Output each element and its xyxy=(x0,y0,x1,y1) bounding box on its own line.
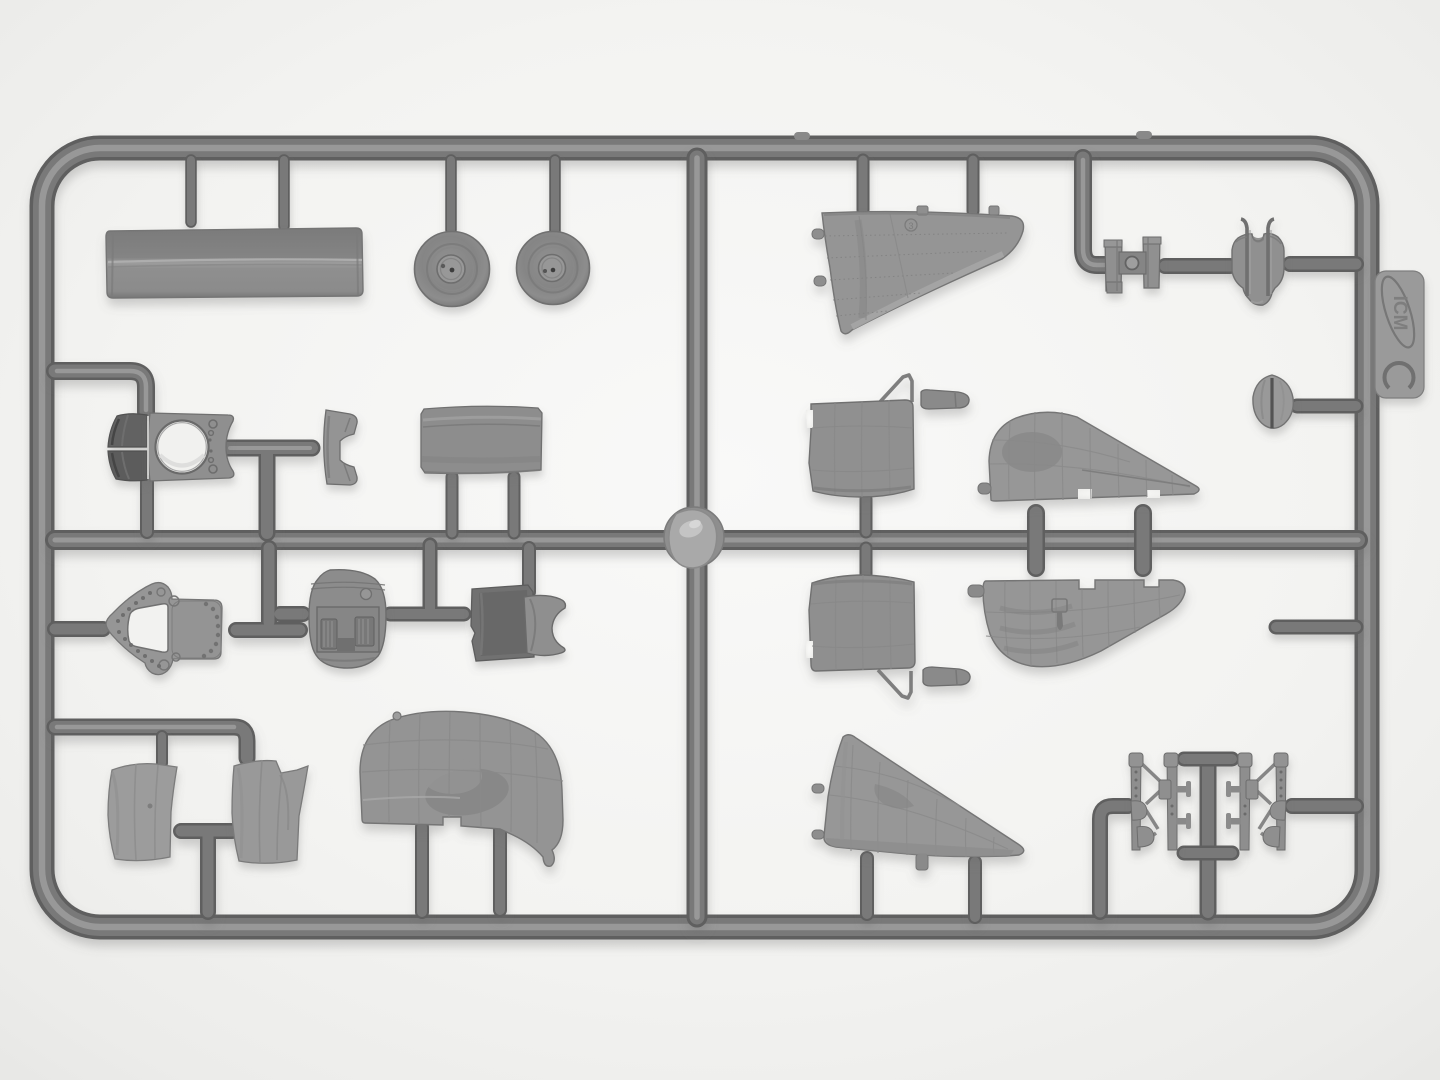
svg-text:ICM: ICM xyxy=(1389,296,1410,331)
svg-text:3: 3 xyxy=(908,221,913,231)
